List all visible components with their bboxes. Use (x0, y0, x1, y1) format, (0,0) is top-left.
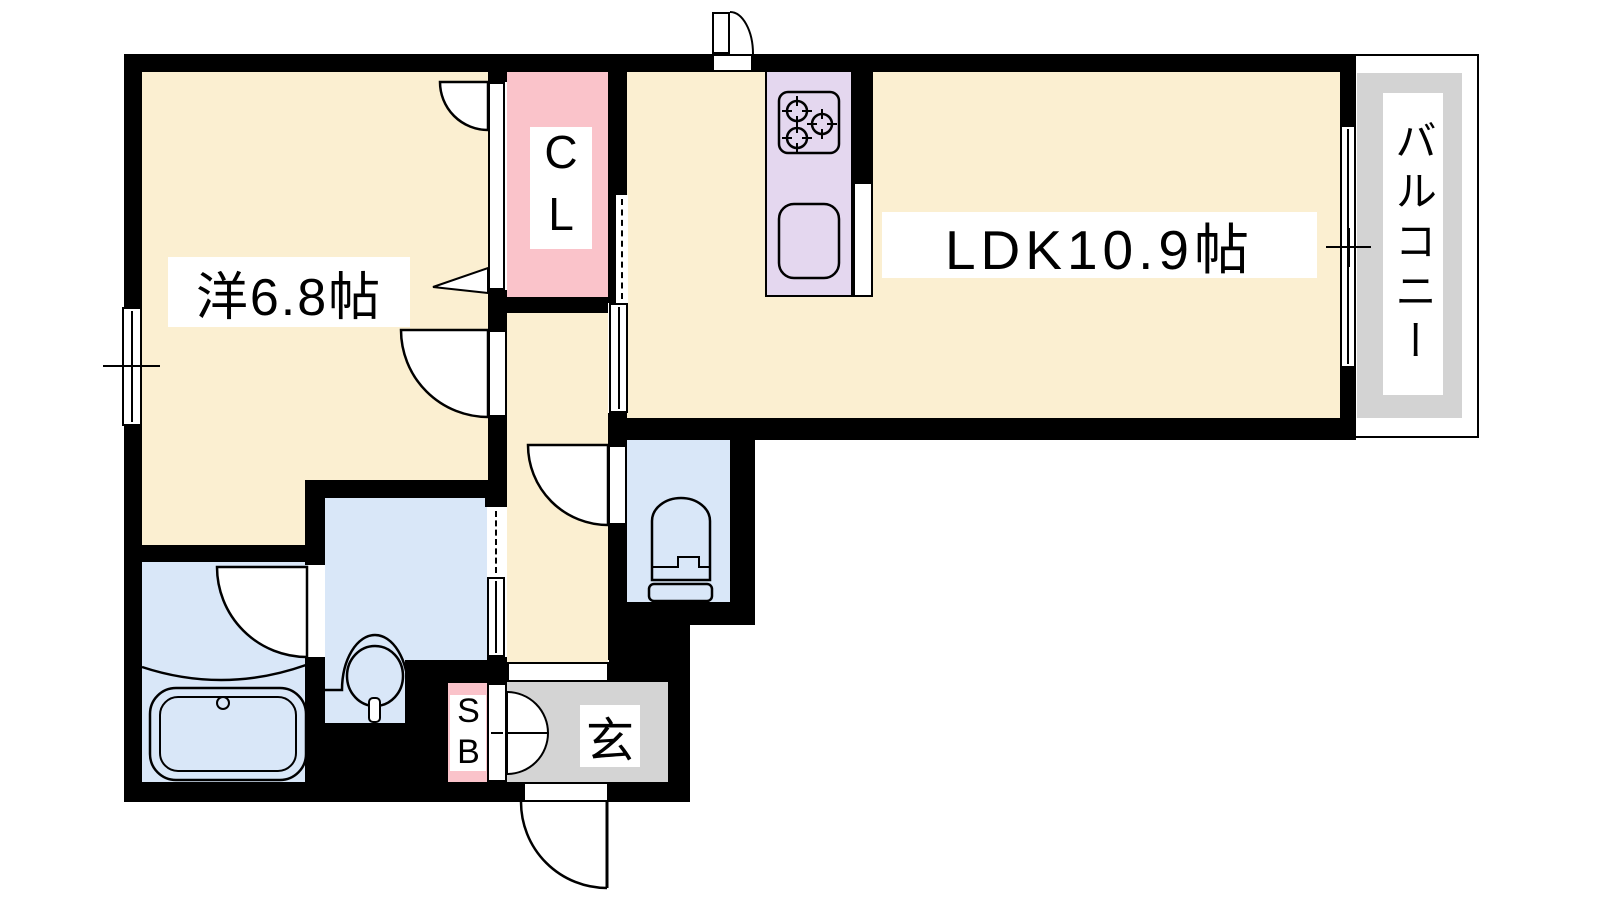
closet-door-track (488, 82, 505, 290)
wall-bathroom-top (124, 545, 325, 562)
toilet-floor (627, 438, 730, 602)
closet-label: CL (530, 127, 592, 249)
wall-hall-toilet (608, 525, 627, 602)
hall-kitchen-sliding-dash (621, 199, 623, 299)
hall-kitchen-sliding-track (616, 195, 628, 303)
balcony-label: バルコニー (1383, 93, 1443, 395)
washroom-sliding-track (487, 507, 505, 577)
kitchen-service-door-arc (730, 12, 753, 54)
bedroom-floor-extension (142, 480, 305, 545)
kitchen-pass-counter (853, 182, 873, 297)
bedroom-window (122, 307, 142, 426)
wall-hall-kitchen-b (608, 413, 627, 445)
toilet-door-leaf (608, 445, 627, 525)
wall-entrance-top-right (609, 660, 690, 682)
wall-bedroom-hall-a (488, 290, 507, 330)
washroom-floor-sink-area (325, 660, 405, 723)
bedroom-label: 洋6.8帖 (168, 257, 410, 327)
wall-toilet-right (730, 438, 755, 625)
washroom-sliding-panel (487, 577, 505, 657)
wall-bottom-left (124, 782, 523, 802)
wall-hall-washroom-a (485, 497, 507, 507)
wall-mass-below-toilet (608, 625, 690, 660)
bedroom-window-line (131, 311, 133, 422)
washroom-floor (325, 498, 487, 660)
entrance-label: 玄 (580, 705, 640, 767)
wall-hall-kitchen-a (608, 72, 627, 195)
wall-top-left (124, 54, 712, 72)
wall-above-shoebox (448, 660, 487, 683)
shoe-box-label: SB (450, 695, 486, 771)
wall-mass-right-of-sink (405, 660, 448, 723)
wall-top-right (753, 54, 1356, 72)
wall-ldk-bottom (627, 418, 1356, 440)
wall-kitchen-stub (853, 72, 873, 182)
wall-left (124, 72, 142, 802)
washroom-sliding-dash (495, 511, 497, 573)
balcony-window-line (1347, 129, 1349, 364)
wall-bedroom-closet-a (488, 72, 507, 82)
entrance-step (507, 662, 609, 682)
wall-bedroom-bottom (305, 480, 507, 498)
hallway-floor (507, 313, 608, 662)
hall-kitchen-sliding-panel (609, 303, 628, 413)
wall-entrance-right (668, 682, 690, 802)
ldk-label: LDK10.9帖 (882, 212, 1317, 278)
hall-kitchen-sliding-panel-line (618, 307, 620, 409)
bedroom-door-leaf (488, 330, 507, 417)
entry-door-frame (523, 782, 609, 802)
floor-plan: 洋6.8帖 LDK10.9帖 CL バルコニー 玄 SB (0, 0, 1600, 900)
washroom-sliding-panel-line (495, 581, 497, 653)
wall-hall-washroom-b (487, 657, 507, 683)
kitchen-service-door-gap (712, 54, 753, 72)
kitchen-counter (765, 72, 853, 297)
entry-door-swing-arc (521, 802, 607, 888)
wall-hall-kitchen-dash-edge (608, 195, 616, 303)
shoe-box-doors (487, 683, 507, 782)
wall-closet-bottom (507, 297, 608, 313)
bathroom-floor (142, 562, 308, 782)
wall-mass-below-washroom (305, 723, 448, 782)
shoe-box-doors-divider (491, 732, 503, 734)
kitchen-service-door-leaf (712, 12, 730, 54)
wall-bath-washroom-b (305, 657, 325, 723)
balcony-window (1340, 125, 1356, 368)
